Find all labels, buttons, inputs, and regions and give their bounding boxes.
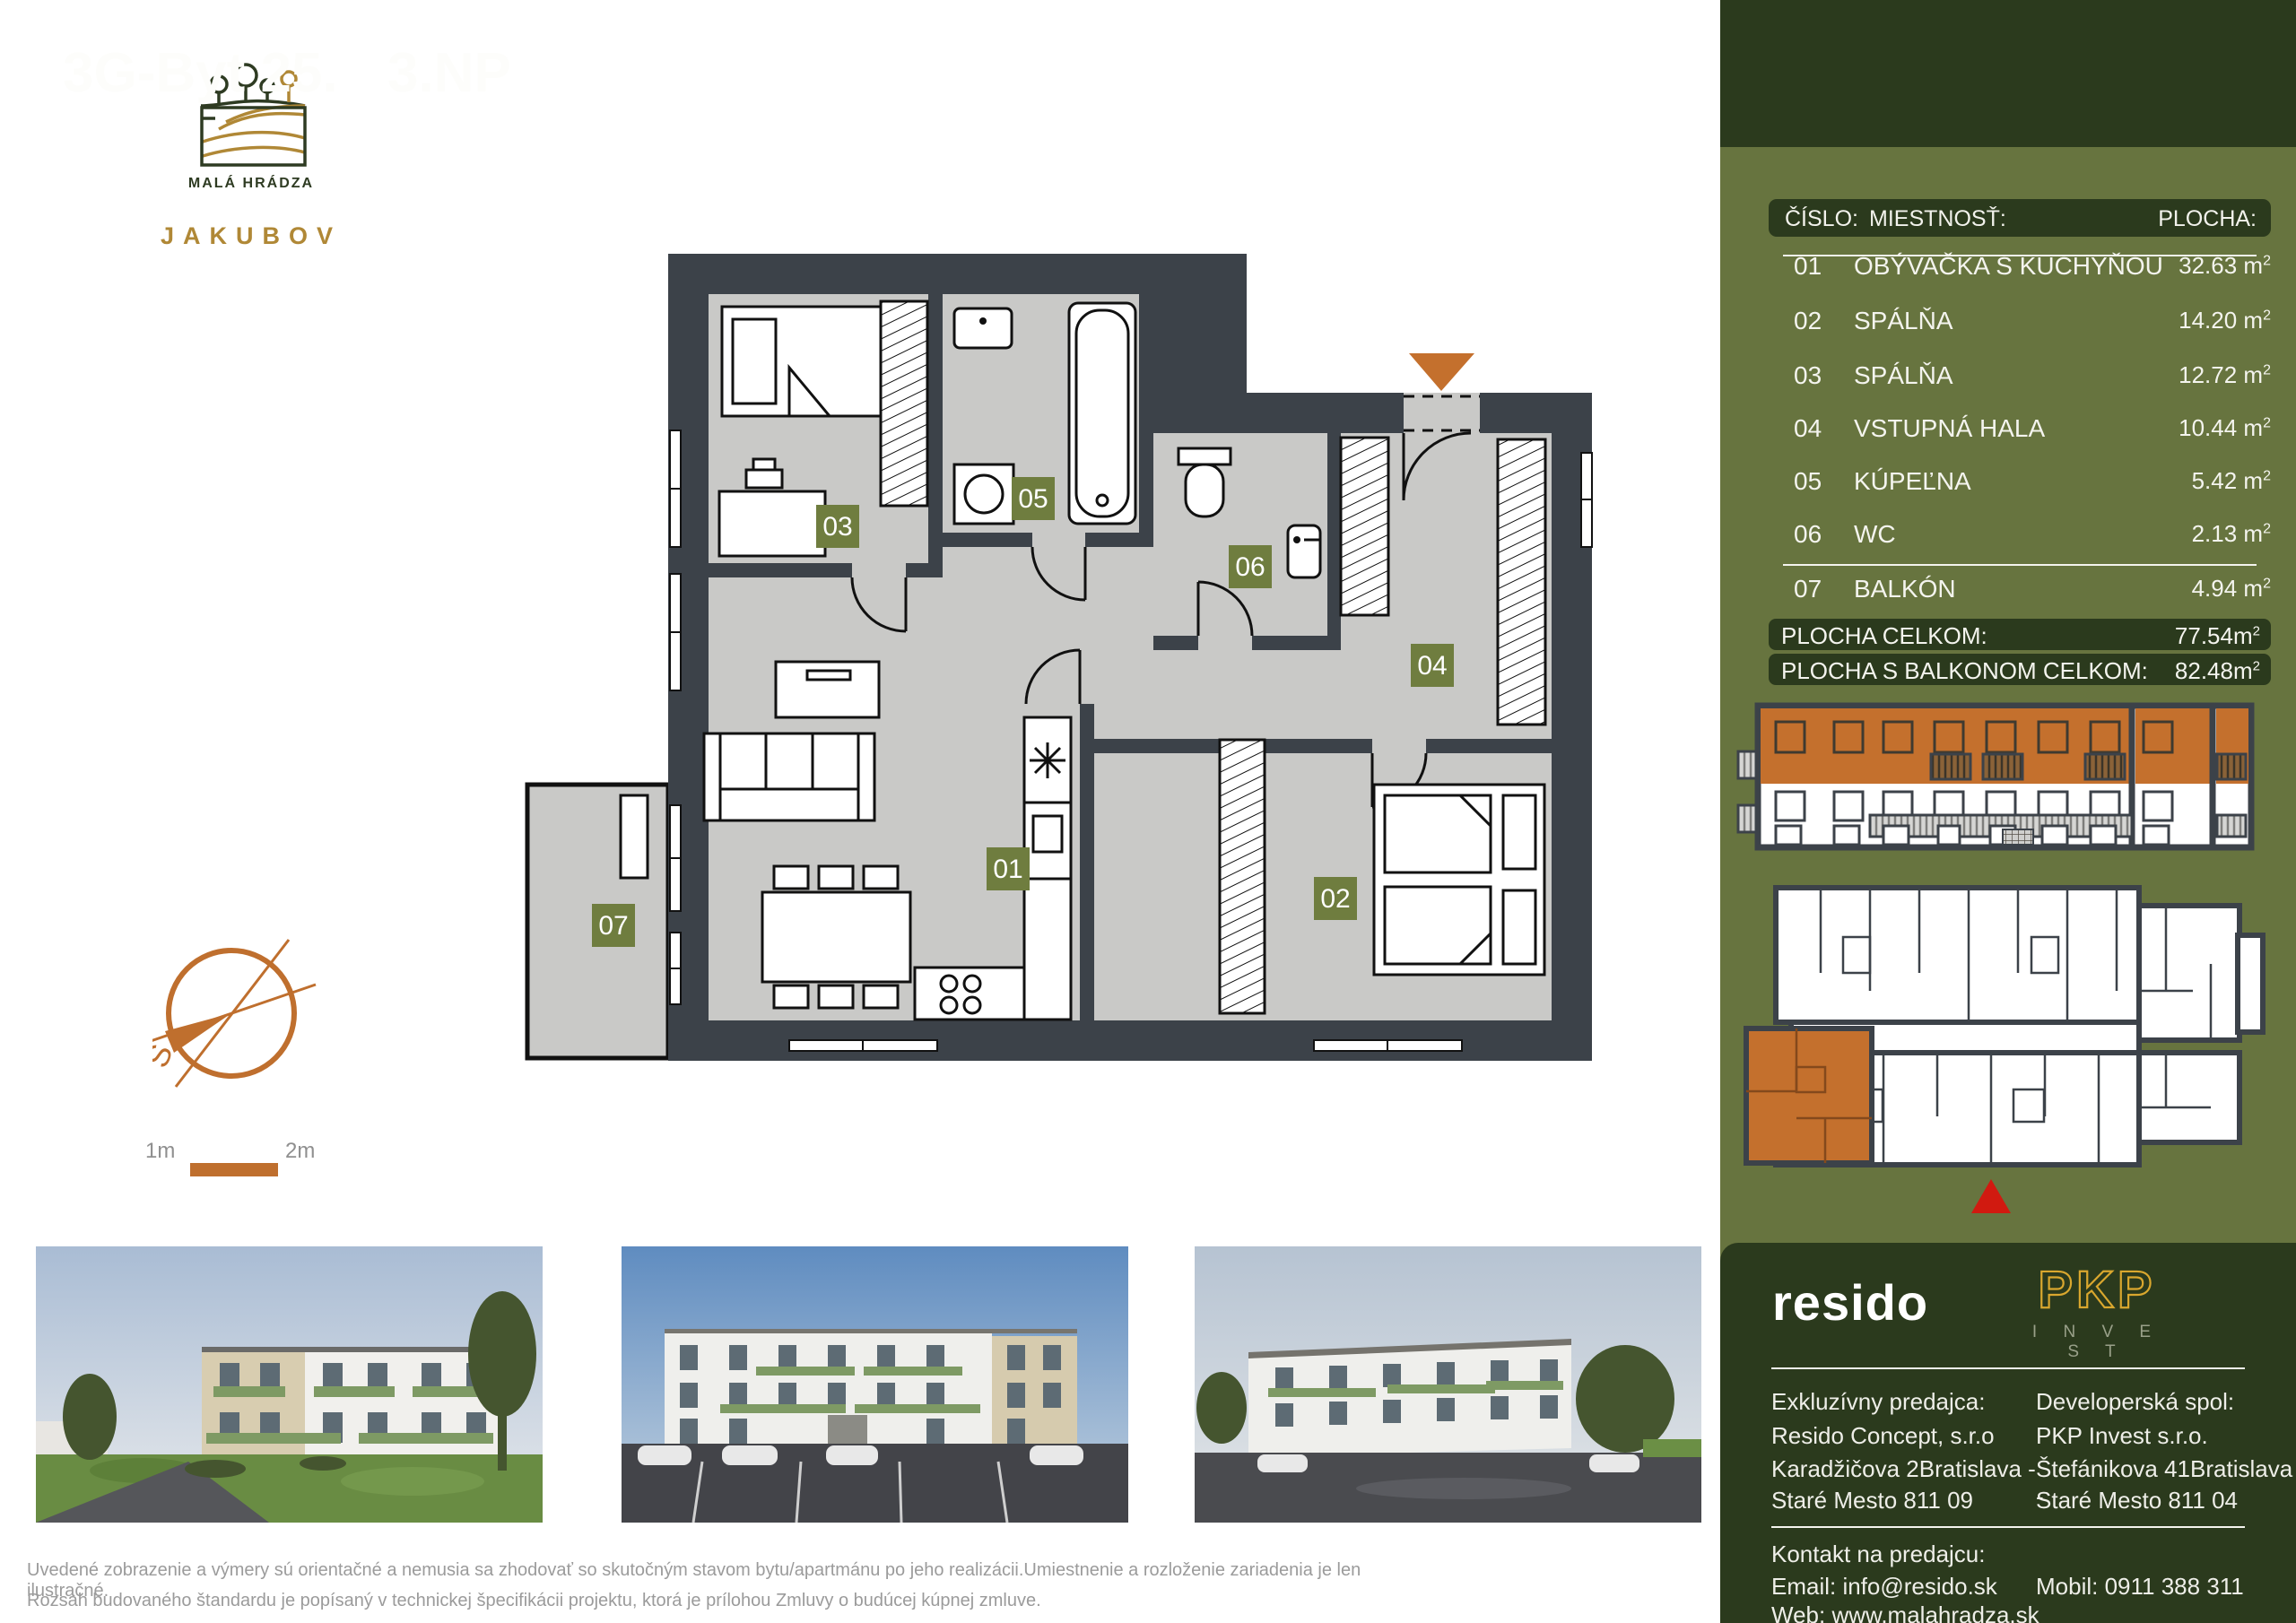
- brochure-page: MALÁ HRÁDZA JAKUBOV: [0, 0, 2296, 1623]
- room-label-01: 01: [987, 847, 1030, 890]
- render-photo-garden-view: [36, 1246, 543, 1523]
- sidebar-footer: resido PKP I N V E S T Exkluzívny predaj…: [1720, 1243, 2296, 1623]
- room-label-06: 06: [1229, 545, 1272, 588]
- col-room: MIESTNOSŤ:: [1869, 206, 2006, 232]
- svg-text:02: 02: [1320, 884, 1350, 914]
- brand-name: MALÁ HRÁDZA: [67, 176, 435, 192]
- footer-divider-top: [1771, 1367, 2245, 1369]
- col-number: ČÍSLO:: [1785, 206, 1858, 232]
- render-photo-side-view: [1195, 1246, 1701, 1523]
- unit-title: 3G-Byt 25.: [63, 0, 338, 147]
- pkp-invest-label: I N V E S T: [2016, 1323, 2178, 1362]
- svg-text:07: 07: [598, 911, 628, 941]
- disclaimer-line-2: Rozsah budovaného štandardu je popísaný …: [27, 1591, 1426, 1611]
- entrance-arrow-icon: [1409, 353, 1474, 391]
- total-area-row: PLOCHA CELKOM: 77.54m2: [1769, 619, 2271, 650]
- svg-text:06: 06: [1235, 552, 1265, 582]
- render-photo-front-view: [622, 1246, 1128, 1523]
- table-row: 02SPÁLŇA 14.20 m2: [1769, 307, 2271, 341]
- table-row: 07BALKÓN 4.94 m2: [1769, 575, 2271, 609]
- floor-title: 3.NP: [387, 0, 511, 147]
- seller-address-1: Karadžičova 2Bratislava -: [1771, 1455, 2036, 1483]
- position-marker-icon: [1971, 1179, 2011, 1213]
- scale-label-1m: 1m: [145, 1139, 175, 1164]
- developer-company: PKP Invest s.r.o.: [2036, 1422, 2208, 1450]
- developer-role: Developerská spol:: [2036, 1388, 2234, 1416]
- room-label-04: 04: [1411, 644, 1454, 687]
- seller-company: Resido Concept, s.r.o: [1771, 1422, 1995, 1450]
- contact-heading: Kontakt na predajcu:: [1771, 1541, 1986, 1568]
- svg-text:03: 03: [822, 512, 852, 542]
- table-row: 06WC 2.13 m2: [1769, 520, 2271, 554]
- table-row: 03SPÁLŇA 12.72 m2: [1769, 361, 2271, 395]
- contact-web: Web: www.malahradza.sk: [1771, 1601, 2039, 1623]
- contact-email: Email: info@resido.sk: [1771, 1573, 1997, 1601]
- svg-text:01: 01: [993, 855, 1022, 884]
- scale-label-2m: 2m: [285, 1139, 315, 1164]
- table-row: 05KÚPEĽNA 5.42 m2: [1769, 467, 2271, 501]
- table-header: ČÍSLO: MIESTNOSŤ: PLOCHA:: [1769, 199, 2271, 237]
- sidebar-header: [1720, 0, 2296, 147]
- scale-bar: [190, 1163, 278, 1176]
- brand-subname: JAKUBOV: [67, 222, 435, 250]
- pkp-logo: PKP I N V E S T: [2016, 1261, 2178, 1362]
- highlighted-unit: [1746, 1028, 1872, 1163]
- svg-text:PKP: PKP: [2038, 1261, 2155, 1318]
- balcony-row-divider: [1783, 564, 2257, 566]
- apartment-floor-plan: 01 02 03 04 05 06 07: [520, 251, 1596, 1076]
- room-label-07: 07: [592, 904, 635, 947]
- table-row: 04VSTUPNÁ HALA 10.44 m2: [1769, 414, 2271, 448]
- building-elevation-diagram: [1735, 702, 2274, 853]
- seller-role: Exkluzívny predajca:: [1771, 1388, 1985, 1416]
- room-label-05: 05: [1012, 477, 1055, 520]
- footer-divider-bottom: [1771, 1526, 2245, 1528]
- compass-icon: S: [152, 933, 332, 1098]
- table-row: 01OBÝVAČKA S KUCHYŇOU 32.63 m2: [1769, 252, 2271, 286]
- svg-text:05: 05: [1018, 484, 1048, 514]
- svg-text:04: 04: [1417, 651, 1447, 681]
- seller-address-2: Staré Mesto 811 09: [1771, 1487, 1973, 1515]
- resido-logo: resido: [1772, 1273, 1928, 1332]
- room-label-03: 03: [816, 505, 859, 548]
- total-area-with-balcony-row: PLOCHA S BALKONOM CELKOM: 82.48m2: [1769, 654, 2271, 685]
- col-area: PLOCHA:: [2158, 206, 2257, 232]
- room-label-02: 02: [1314, 877, 1357, 920]
- floor-overview-diagram: [1735, 883, 2274, 1224]
- contact-mobile: Mobil: 0911 388 311: [2036, 1573, 2244, 1601]
- developer-address-2: Staré Mesto 811 04: [2036, 1487, 2238, 1515]
